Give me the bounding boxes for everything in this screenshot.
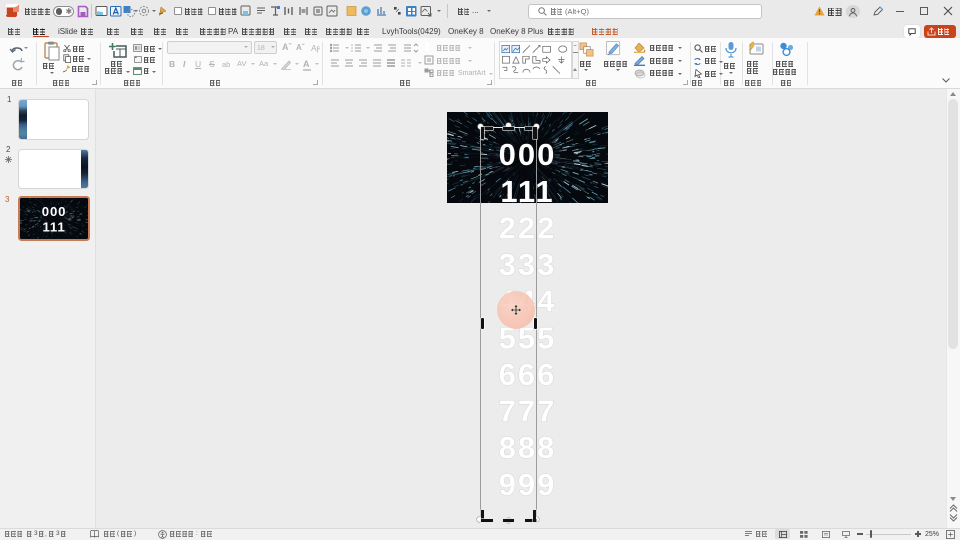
svg-text:P: P — [6, 4, 19, 18]
svg-text:000: 000 — [41, 204, 66, 219]
svg-text:T: T — [424, 42, 434, 52]
svg-text:111: 111 — [500, 174, 554, 209]
svg-text:888: 888 — [499, 430, 557, 465]
svg-text:333: 333 — [499, 247, 557, 282]
svg-text:222: 222 — [499, 210, 557, 245]
svg-text:777: 777 — [499, 394, 557, 429]
svg-text:000: 000 — [499, 137, 557, 172]
svg-text:111: 111 — [42, 220, 65, 235]
svg-text:666: 666 — [499, 357, 557, 392]
svg-text:999: 999 — [499, 467, 557, 502]
